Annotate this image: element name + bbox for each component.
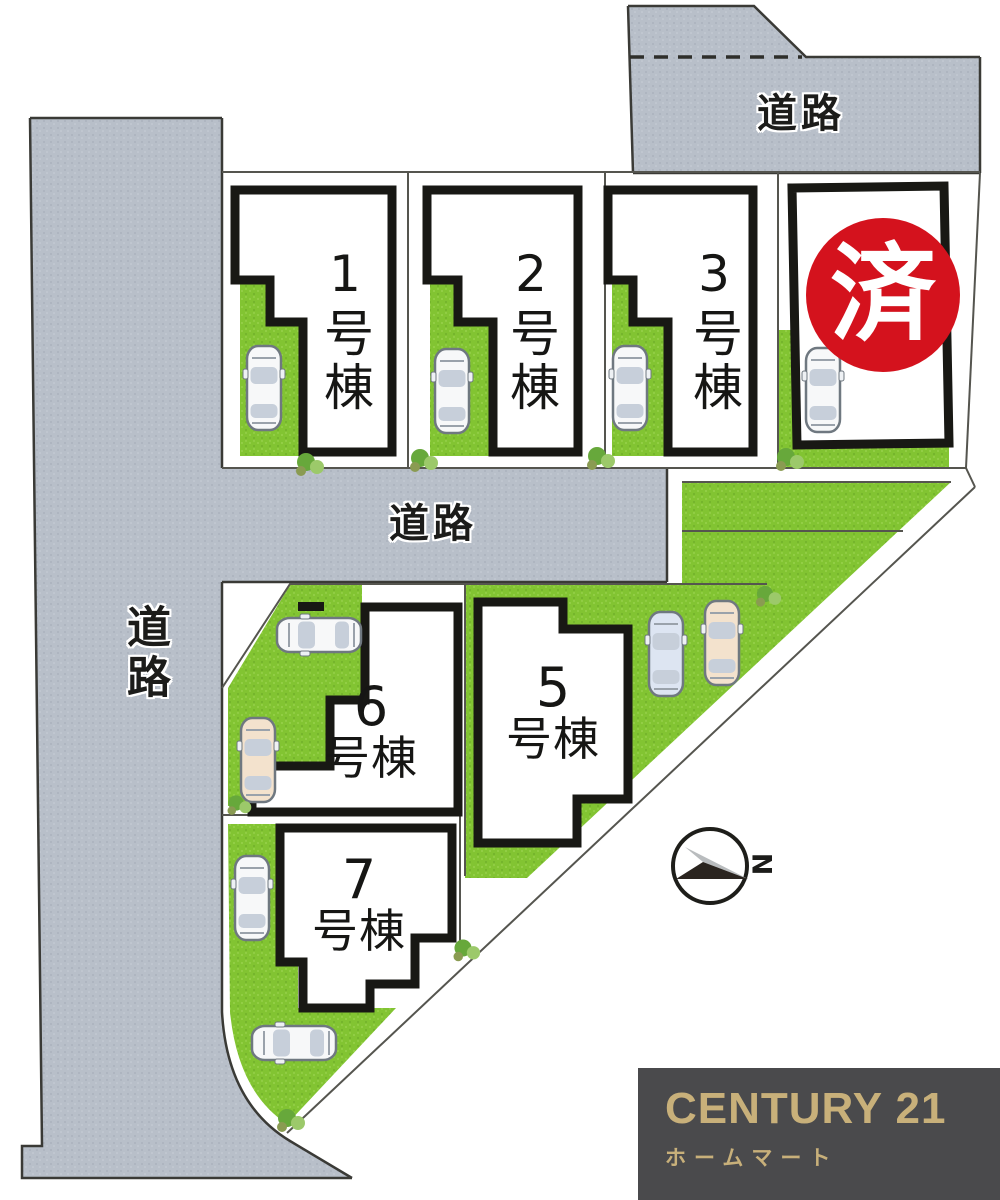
lot-7-number: 7	[312, 853, 406, 907]
road-label-top: 道路	[757, 94, 845, 134]
car-icon	[277, 614, 361, 656]
lot-5-suffix: 号棟	[506, 715, 600, 763]
car-icon	[252, 1022, 336, 1064]
sold-stamp-text: 済	[830, 242, 936, 348]
lot-1-label: 1号棟	[320, 245, 370, 415]
road-label-middle: 道路	[389, 504, 477, 544]
lot-3-label: 3号棟	[689, 245, 739, 415]
brand-title: CENTURY 21	[665, 1085, 1000, 1133]
brand-banner: CENTURY 21 ホームマート	[638, 1068, 1000, 1200]
lot-6-label: 6 号棟	[324, 680, 418, 782]
road-label-left: 道路	[122, 604, 166, 704]
road-top-right	[628, 6, 980, 173]
car-icon	[431, 349, 473, 433]
fence-dash	[298, 602, 324, 611]
lot-5-label: 5 号棟	[506, 661, 600, 763]
lot-5-number: 5	[506, 661, 600, 715]
north-label: N	[746, 853, 777, 876]
car-icon	[609, 346, 651, 430]
car-icon	[231, 856, 273, 940]
lot-6-number: 6	[324, 680, 418, 734]
road-end-margin	[667, 470, 682, 582]
brand-subtitle: ホームマート	[665, 1142, 1000, 1172]
car-icon	[243, 346, 285, 430]
car-icon	[701, 601, 743, 685]
lot-6-suffix: 号棟	[324, 734, 418, 782]
sold-stamp: 済	[806, 218, 960, 372]
car-icon	[237, 718, 279, 802]
plan-drawing	[0, 0, 1000, 1200]
compass	[673, 829, 748, 903]
car-icon	[802, 348, 844, 432]
lot-2-label: 2号棟	[506, 245, 556, 415]
bush-icon	[587, 447, 615, 470]
lot-7-suffix: 号棟	[312, 907, 406, 955]
site-plan: 道路 道路 道路 1号棟 2号棟 3号棟 5 号棟 6 号棟 7 号棟 済 N …	[0, 0, 1000, 1200]
car-icon	[645, 612, 687, 696]
lot-7-label: 7 号棟	[312, 853, 406, 955]
bush-icon	[454, 939, 481, 961]
